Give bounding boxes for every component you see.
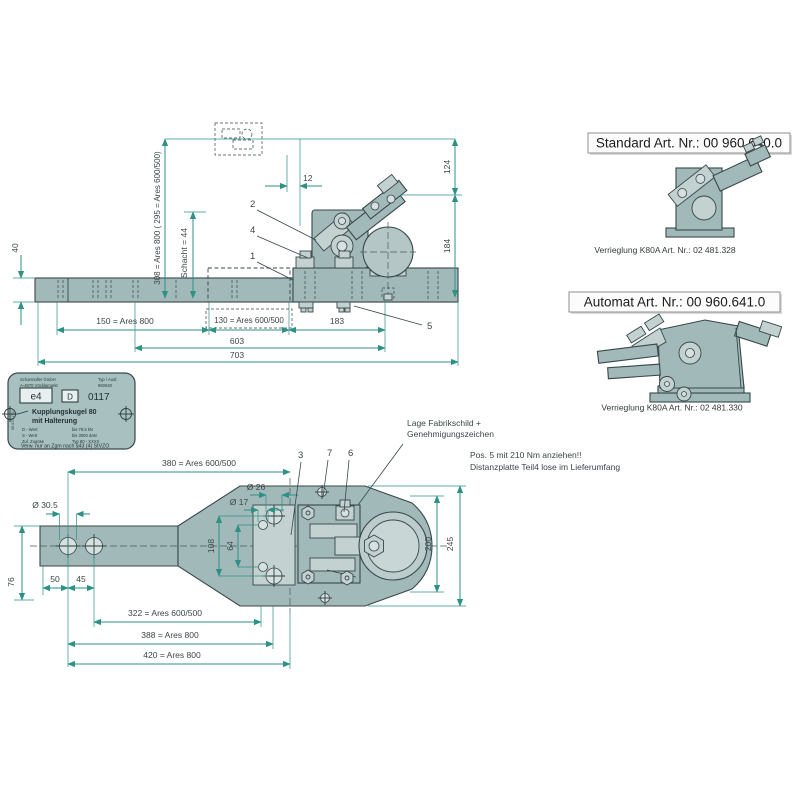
callout-5: 5 <box>427 321 432 332</box>
mount-bolt-left <box>296 251 314 268</box>
plate-spec1-label: D - Wert <box>22 427 38 432</box>
plate-d: D <box>67 393 73 402</box>
drawing-canvas: 308 = Ares 800 ( 295 = Ares 600/500) Sch… <box>0 0 800 800</box>
callout-3: 3 <box>298 450 303 461</box>
automat-title: Automat Art. Nr.: 00 960.641.0 <box>584 295 766 310</box>
dim-64-label: 64 <box>225 541 235 551</box>
plate-approval-nr: 0117 <box>88 392 110 403</box>
plate-type-value: 960640 <box>98 383 113 388</box>
plate-e4: e4 <box>30 392 42 403</box>
dim-76-label: 76 <box>6 577 16 587</box>
callout-2: 2 <box>250 199 255 210</box>
plate-side-code: 06 675 751 <box>11 411 15 430</box>
mount-assembly-top <box>298 500 365 585</box>
plate-type-label: Typ / Ausf. <box>98 377 118 382</box>
dim-50-label: 50 <box>50 574 60 584</box>
note-pos5-line1: Pos. 5 mit 210 Nm anziehen!! <box>470 450 582 460</box>
dim-200-label: 200 <box>423 537 433 551</box>
callout-6: 6 <box>348 448 353 459</box>
note-fabrikschild-line1: Lage Fabrikschild + <box>407 418 481 428</box>
dim-45-label: 45 <box>76 574 86 584</box>
plate-spec2-value: bis 3000 daN <box>72 433 97 438</box>
dim-183-label: 183 <box>330 316 344 326</box>
automat-variant-drawing <box>597 314 781 402</box>
dim-380-label: 380 = Ares 600/500 <box>162 458 236 468</box>
standard-caption: Verrieglung K80A Art. Nr.: 02 481.328 <box>594 245 736 255</box>
dim-40-label: 40 <box>10 243 20 253</box>
dim-108-label: 108 <box>206 539 216 553</box>
note-pos5-line2: Distanzplatte Teil4 lose im Lieferumfang <box>470 462 620 472</box>
technical-drawing-page: 308 = Ares 800 ( 295 = Ares 600/500) Sch… <box>0 0 800 800</box>
type-plate: Scharmüller GmbH A-4870 Vöcklamarkt Haup… <box>2 373 135 450</box>
callout-4: 4 <box>250 225 255 236</box>
dim-388-label: 388 = Ares 800 <box>141 630 199 640</box>
dim-d26-label: Ø 26 <box>247 482 266 492</box>
dim-322-label: 322 = Ares 600/500 <box>128 608 202 618</box>
dim-703-label: 703 <box>230 350 244 360</box>
callout-7: 7 <box>327 448 332 459</box>
dim-245-label: 245 <box>445 537 455 551</box>
plate-spec1-value: bis 78.5 kN <box>72 427 93 432</box>
dim-603-label: 603 <box>230 336 244 346</box>
plate-product-1: Kupplungskugel 80 <box>32 409 97 416</box>
plate-footer: Verw. nur an Zgm nach §43 (4) StVZO <box>21 444 109 450</box>
dim-schacht-label: Schacht = 44 <box>179 228 189 278</box>
callout-1: 1 <box>250 251 255 262</box>
dim-12-label: 12 <box>303 173 313 183</box>
note-fabrikschild-line2: Genehmigungszeichen <box>407 429 494 439</box>
dim-d305-label: Ø 30.5 <box>32 500 58 510</box>
plate-spec2-label: S - Wert <box>22 433 38 438</box>
dim-130-label: 130 = Ares 600/500 <box>214 316 284 325</box>
side-view: 308 = Ares 800 ( 295 = Ares 600/500) Sch… <box>10 123 462 366</box>
underside-bolts <box>299 302 350 312</box>
dim-d17-label: Ø 17 <box>230 497 249 507</box>
dim-124-label: 124 <box>442 160 452 174</box>
dim-420-label: 420 = Ares 800 <box>143 650 201 660</box>
dim-height-label: 308 = Ares 800 ( 295 = Ares 600/500) <box>153 151 162 285</box>
dim-150-label: 150 = Ares 800 <box>96 316 154 326</box>
right-panel: Standard Art. Nr.: 00 960.640.0 Verriegl… <box>569 133 792 413</box>
plate-product-2: mit Halterung <box>32 418 77 425</box>
top-view: 380 = Ares 600/500 Ø 26 Ø 17 108 64 Ø 30… <box>6 418 620 669</box>
automat-caption: Verrieglung K80A Art. Nr.: 02 481.330 <box>601 403 743 413</box>
plate-maker-1: Scharmüller GmbH <box>20 377 56 382</box>
dim-184-label: 184 <box>442 239 452 253</box>
plate-maker-2: A-4870 Vöcklamarkt <box>20 383 59 388</box>
